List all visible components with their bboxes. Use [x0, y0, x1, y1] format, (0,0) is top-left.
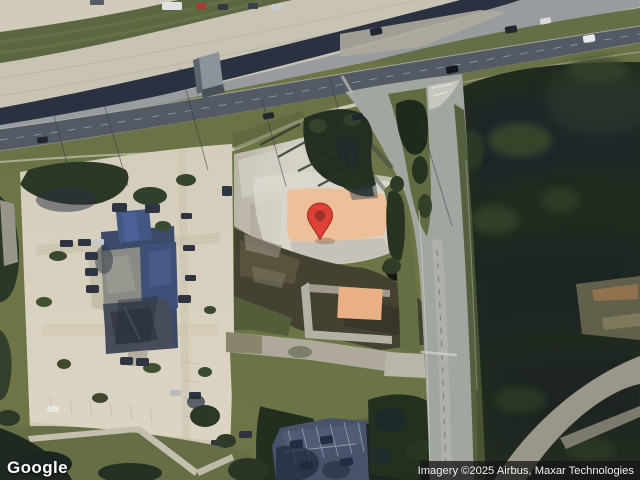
svg-text:Imagery ©2025 Airbus, Maxar Te: Imagery ©2025 Airbus, Maxar Technologies: [418, 465, 635, 477]
svg-text:Google: Google: [7, 458, 68, 477]
